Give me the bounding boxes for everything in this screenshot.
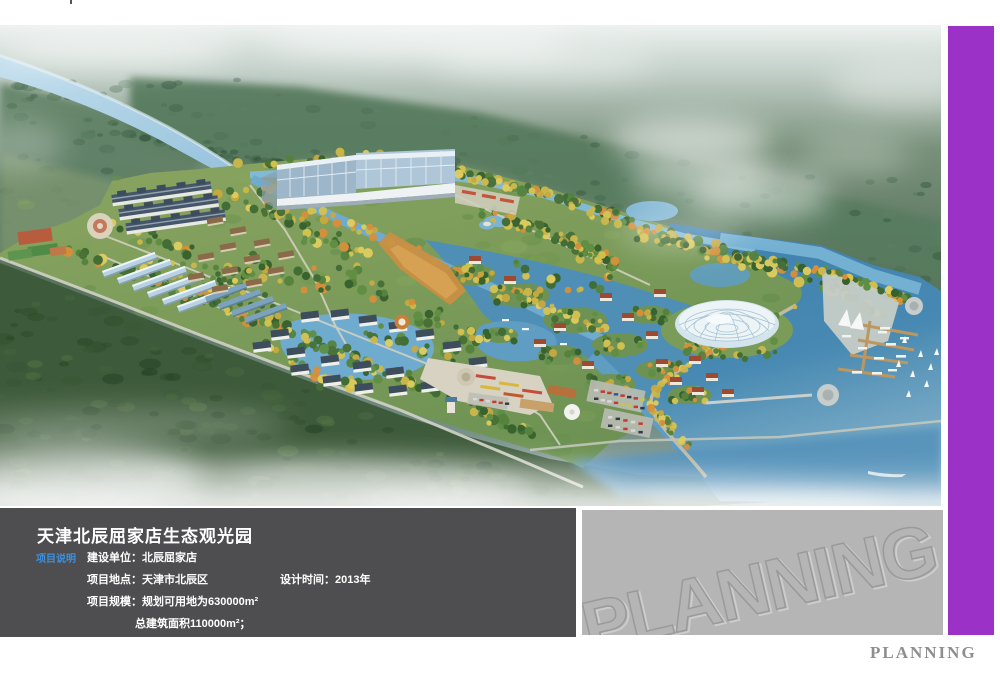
- svg-text:PLANNING: PLANNING: [582, 510, 943, 635]
